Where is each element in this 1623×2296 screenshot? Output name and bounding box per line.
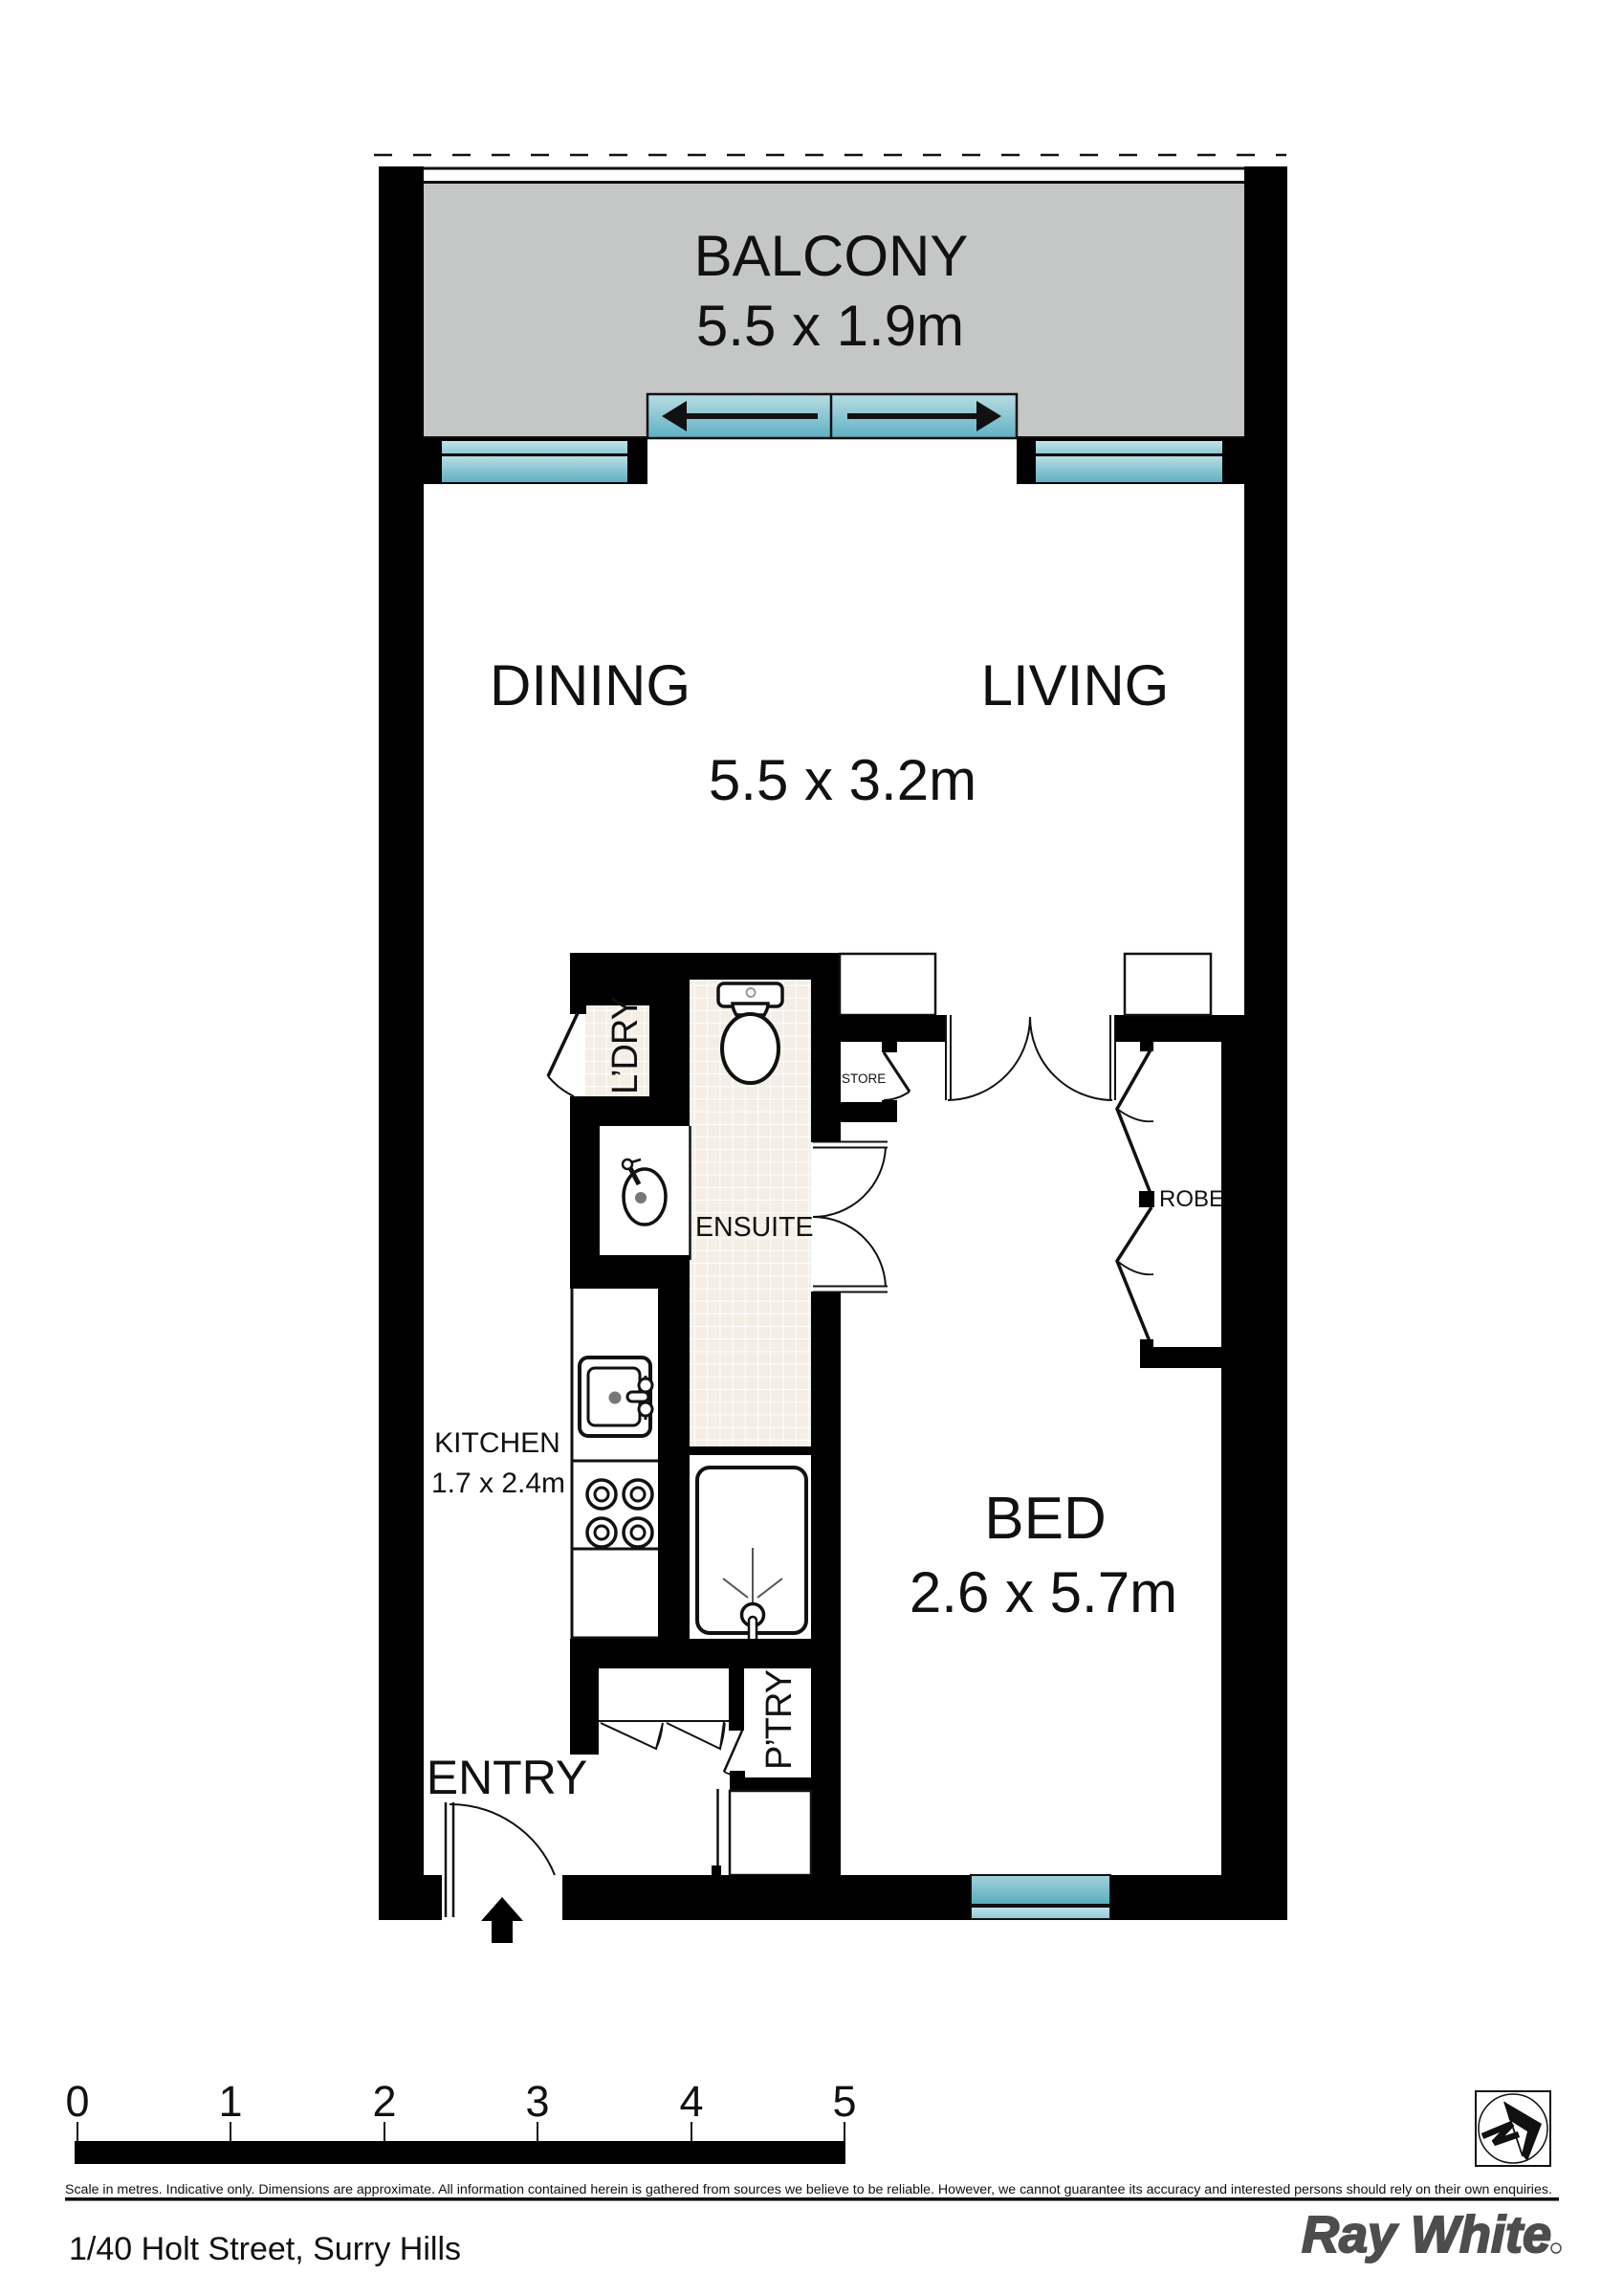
svg-text:LIVING: LIVING <box>981 653 1170 717</box>
svg-text:5.5 x 3.2m: 5.5 x 3.2m <box>709 748 976 812</box>
svg-text:STORE: STORE <box>842 1071 886 1086</box>
svg-text:1/40 Holt Street, Surry Hills: 1/40 Holt Street, Surry Hills <box>69 2231 461 2267</box>
svg-text:KITCHEN: KITCHEN <box>434 1427 560 1459</box>
svg-text:0: 0 <box>65 2077 89 2126</box>
svg-text:1.7 x 2.4m: 1.7 x 2.4m <box>431 1468 565 1499</box>
svg-text:DINING: DINING <box>490 653 691 717</box>
svg-text:Ray White: Ray White <box>1302 2206 1551 2263</box>
svg-text:P’TRY: P’TRY <box>759 1669 800 1770</box>
svg-text:2: 2 <box>372 2077 396 2126</box>
svg-text:5: 5 <box>832 2077 856 2126</box>
svg-text:4: 4 <box>679 2077 703 2126</box>
svg-text:5.5 x 1.9m: 5.5 x 1.9m <box>696 294 964 358</box>
svg-text:3: 3 <box>525 2077 549 2126</box>
svg-text:BALCONY: BALCONY <box>694 224 969 288</box>
svg-text:Scale in metres. Indicative on: Scale in metres. Indicative only. Dimens… <box>65 2182 1552 2197</box>
svg-text:ROBE: ROBE <box>1159 1186 1224 1212</box>
svg-text:L’DRY: L’DRY <box>605 996 646 1094</box>
svg-text:1: 1 <box>218 2077 242 2126</box>
svg-text:ENTRY: ENTRY <box>427 1751 588 1804</box>
svg-text:BED: BED <box>984 1486 1106 1552</box>
svg-text:2.6 x 5.7m: 2.6 x 5.7m <box>910 1560 1177 1624</box>
svg-text:ENSUITE: ENSUITE <box>695 1212 814 1243</box>
